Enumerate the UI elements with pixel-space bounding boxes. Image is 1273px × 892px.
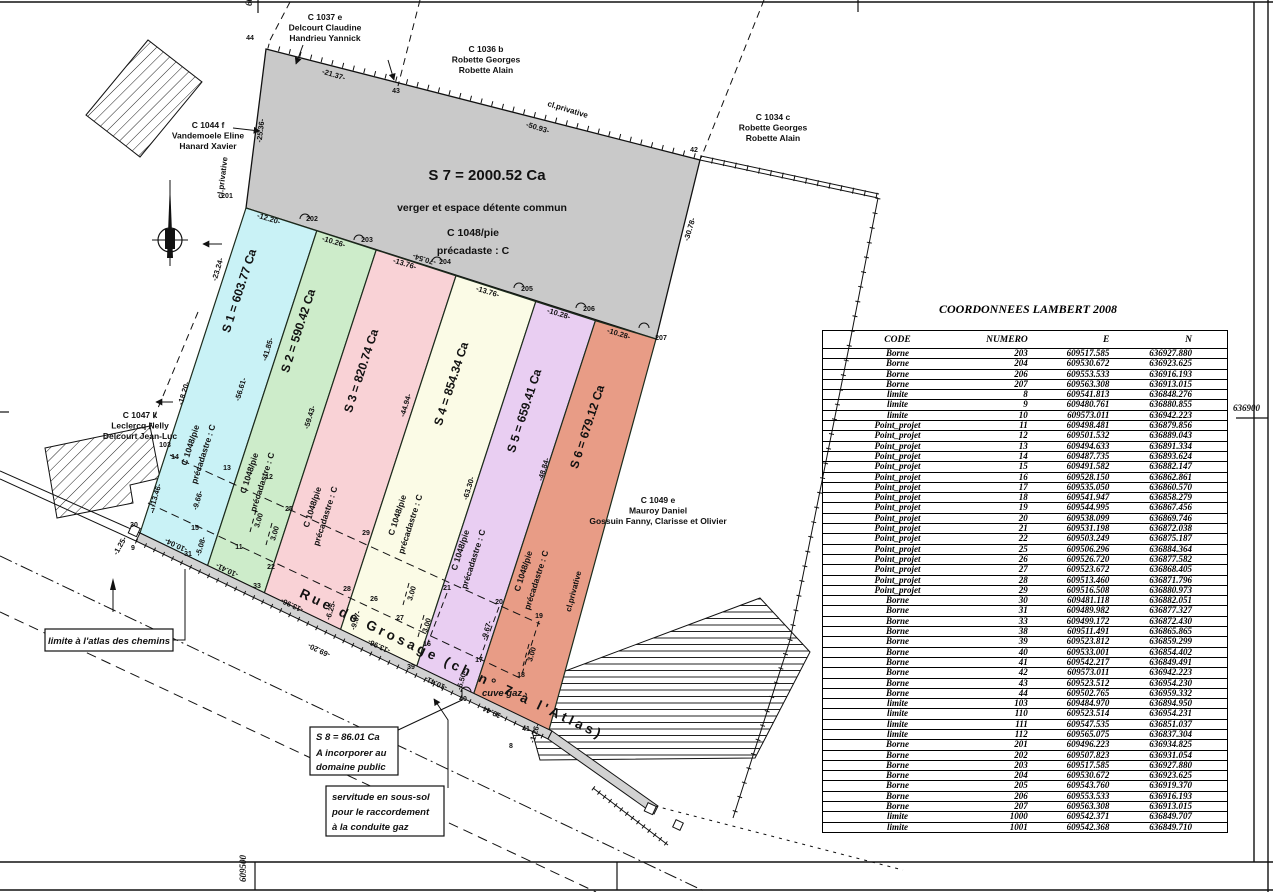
- point-number-label: 14: [171, 454, 179, 461]
- cell-n: 636849.710: [1109, 822, 1227, 832]
- point-number-label: 26: [370, 596, 378, 603]
- cell-numero: 11: [972, 421, 1028, 431]
- cell-n: 636919.370: [1109, 781, 1227, 791]
- cell-e: 609563.308: [1028, 379, 1110, 389]
- cell-numero: 13: [972, 441, 1028, 451]
- table-row: limite9609480.761636880.855: [823, 400, 1228, 410]
- cell-numero: 202: [972, 750, 1028, 760]
- dimension-label: -69.20-: [306, 641, 332, 659]
- cell-numero: 204: [972, 771, 1028, 781]
- point-number-label: 207: [655, 335, 667, 342]
- cell-code: Borne: [823, 647, 972, 657]
- dimension-label: -1.25-: [111, 535, 129, 557]
- cell-numero: 17: [972, 482, 1028, 492]
- point-number-label: 43: [392, 88, 400, 95]
- neighbor-label-c-1049-e: C 1049 e: [641, 495, 676, 505]
- neighbor-label-c-1047-k: Leclercq Nelly: [111, 421, 169, 431]
- cell-numero: 18: [972, 493, 1028, 503]
- cell-code: limite: [823, 812, 972, 822]
- cell-numero: 9: [972, 400, 1028, 410]
- point-number-label: 202: [306, 216, 318, 223]
- table-row: Borne38609511.491636865.865: [823, 627, 1228, 637]
- cell-code: Point_projet: [823, 472, 972, 482]
- cell-e: 609543.760: [1028, 781, 1110, 791]
- neighbor-label-c-1034-c: C 1034 c: [756, 112, 791, 122]
- cell-n: 636882.147: [1109, 462, 1227, 472]
- cell-n: 636879.856: [1109, 421, 1227, 431]
- table-row: Borne40609533.001636854.402: [823, 647, 1228, 657]
- grid-label-609500: 609500: [238, 855, 248, 883]
- cell-n: 636862.861: [1109, 472, 1227, 482]
- cell-e: 609516.508: [1028, 585, 1110, 595]
- table-row: Point_projet26609526.720636877.582: [823, 554, 1228, 564]
- cell-code: Point_projet: [823, 503, 972, 513]
- cell-code: Point_projet: [823, 493, 972, 503]
- neighbor-label-c-1049-e: Gossuin Fanny, Clarisse et Olivier: [589, 516, 727, 526]
- neighbor-label-c-1037-e: C 1037 e: [308, 12, 343, 22]
- point-number-label: 16: [423, 641, 431, 648]
- cell-n: 636916.193: [1109, 791, 1227, 801]
- table-row: Point_projet20609538.099636869.746: [823, 513, 1228, 523]
- note-servitude-line3: à la conduite gaz: [332, 822, 409, 833]
- header-code: CODE: [823, 331, 972, 349]
- table-row: Borne204609530.672636923.625: [823, 359, 1228, 369]
- point-number-label: 19: [535, 613, 543, 620]
- cell-n: 636875.187: [1109, 534, 1227, 544]
- cell-code: Point_projet: [823, 421, 972, 431]
- cell-code: limite: [823, 729, 972, 739]
- table-row: Point_projet18609541.947636858.279: [823, 493, 1228, 503]
- neighbor-label-c-1036-b: C 1036 b: [469, 44, 504, 54]
- cell-e: 609517.585: [1028, 349, 1110, 359]
- neighbor-label-c-1044-f: Hanard Xavier: [179, 141, 237, 151]
- table-row: Borne207609563.308636913.015: [823, 802, 1228, 812]
- cell-code: limite: [823, 719, 972, 729]
- cell-e: 609501.532: [1028, 431, 1110, 441]
- neighbor-label-c-1034-c: Robette Georges: [739, 123, 808, 133]
- cell-numero: 207: [972, 379, 1028, 389]
- cell-n: 636860.570: [1109, 482, 1227, 492]
- cell-n: 636923.625: [1109, 359, 1227, 369]
- header-e: E: [1028, 331, 1110, 349]
- cell-numero: 204: [972, 359, 1028, 369]
- neighbor-label-c-1036-b: Robette Georges: [452, 55, 521, 65]
- table-row: Point_projet11609498.481636879.856: [823, 421, 1228, 431]
- s7-area-label: S 7 = 2000.52 Ca: [428, 167, 546, 184]
- cell-code: Point_projet: [823, 554, 972, 564]
- table-row: Point_projet21609531.198636872.038: [823, 524, 1228, 534]
- table-row: Borne206609553.533636916.193: [823, 369, 1228, 379]
- cell-e: 609499.172: [1028, 616, 1110, 626]
- cell-numero: 43: [972, 678, 1028, 688]
- point-number-label: 8: [509, 743, 513, 750]
- cell-e: 609526.720: [1028, 554, 1110, 564]
- table-row: Point_projet14609487.735636893.624: [823, 451, 1228, 461]
- cell-n: 636872.430: [1109, 616, 1227, 626]
- table-row: limite112609565.075636837.304: [823, 729, 1228, 739]
- cell-e: 609503.249: [1028, 534, 1110, 544]
- cell-e: 609523.812: [1028, 637, 1110, 647]
- cell-e: 609530.672: [1028, 359, 1110, 369]
- table-row: Borne205609543.760636919.370: [823, 781, 1228, 791]
- note-limite-text: limite à l'atlas des chemins: [48, 636, 170, 647]
- cell-code: Borne: [823, 668, 972, 678]
- cell-e: 609535.050: [1028, 482, 1110, 492]
- point-number-label: 15: [191, 525, 199, 532]
- cell-code: Borne: [823, 750, 972, 760]
- cell-e: 609517.585: [1028, 760, 1110, 770]
- cell-code: Borne: [823, 781, 972, 791]
- point-number-label: 25: [285, 506, 293, 513]
- cell-code: Borne: [823, 791, 972, 801]
- table-row: Point_projet17609535.050636860.570: [823, 482, 1228, 492]
- cell-numero: 206: [972, 369, 1028, 379]
- cell-n: 636942.223: [1109, 668, 1227, 678]
- cl-privative-label: cl.privative: [546, 99, 589, 120]
- neighbor-label-c-1036-b: Robette Alain: [459, 65, 513, 75]
- table-row: Borne39609523.812636859.299: [823, 637, 1228, 647]
- point-number-label: 203: [361, 237, 373, 244]
- cell-n: 636869.746: [1109, 513, 1227, 523]
- cell-numero: 16: [972, 472, 1028, 482]
- table-row: Borne42609573.011636942.223: [823, 668, 1228, 678]
- table-row: Borne204609530.672636923.625: [823, 771, 1228, 781]
- cell-numero: 110: [972, 709, 1028, 719]
- point-number-label: 42: [690, 147, 698, 154]
- cell-e: 609553.533: [1028, 369, 1110, 379]
- table-row: limite1001609542.368636849.710: [823, 822, 1228, 832]
- table-row: Borne31609489.982636877.327: [823, 606, 1228, 616]
- cell-n: 636931.054: [1109, 750, 1227, 760]
- table-row: Point_projet27609523.672636868.405: [823, 565, 1228, 575]
- cell-n: 636880.855: [1109, 400, 1227, 410]
- cell-e: 609553.533: [1028, 791, 1110, 801]
- note-servitude-box: servitude en sous-sol pour le raccordeme…: [326, 786, 444, 836]
- cell-code: Borne: [823, 369, 972, 379]
- neighbor-label-c-1044-f: C 1044 f: [192, 120, 225, 130]
- table-row: Borne206609553.533636916.193: [823, 791, 1228, 801]
- cell-code: limite: [823, 822, 972, 832]
- cell-numero: 28: [972, 575, 1028, 585]
- cell-code: Point_projet: [823, 585, 972, 595]
- cell-n: 636959.332: [1109, 688, 1227, 698]
- header-n: N: [1109, 331, 1227, 349]
- table-row: Point_projet29609516.508636880.973: [823, 585, 1228, 595]
- cell-numero: 20: [972, 513, 1028, 523]
- cell-numero: 112: [972, 729, 1028, 739]
- header-numero: NUMERO: [972, 331, 1028, 349]
- point-number-label: 7: [151, 508, 155, 515]
- cell-e: 609481.118: [1028, 596, 1110, 606]
- table-row: Borne203609517.585636927.880: [823, 349, 1228, 359]
- neighbor-label-c-1037-e: Handrieu Yannick: [289, 33, 360, 43]
- cell-code: Point_projet: [823, 575, 972, 585]
- cell-numero: 44: [972, 688, 1028, 698]
- point-number-label: 39: [407, 664, 415, 671]
- cell-e: 609487.735: [1028, 451, 1110, 461]
- cell-e: 609542.217: [1028, 657, 1110, 667]
- cell-n: 636882.051: [1109, 596, 1227, 606]
- cell-n: 636889.043: [1109, 431, 1227, 441]
- cell-e: 609494.633: [1028, 441, 1110, 451]
- cell-numero: 38: [972, 627, 1028, 637]
- cell-code: Borne: [823, 637, 972, 647]
- neighbor-label-c-1047-k: Delcourt Jean-Luc: [103, 431, 177, 441]
- cell-e: 609533.001: [1028, 647, 1110, 657]
- cell-code: Borne: [823, 349, 972, 359]
- cell-code: Point_projet: [823, 565, 972, 575]
- table-row: Point_projet22609503.249636875.187: [823, 534, 1228, 544]
- cell-code: Borne: [823, 760, 972, 770]
- coordinates-panel: COORDONNEES LAMBERT 2008 CODE NUMERO E N…: [822, 302, 1234, 833]
- cell-numero: 27: [972, 565, 1028, 575]
- neighbor-label-c-1037-e: Delcourt Claudine: [289, 23, 362, 33]
- point-number-label: 30: [130, 522, 138, 529]
- grid-label-top-clipped: 609500: [244, 0, 254, 6]
- cell-code: Borne: [823, 678, 972, 688]
- cell-e: 609523.672: [1028, 565, 1110, 575]
- point-number-label: 22: [267, 564, 275, 571]
- cell-code: Borne: [823, 606, 972, 616]
- point-number-label: 27: [396, 615, 404, 622]
- table-row: Borne207609563.308636913.015: [823, 379, 1228, 389]
- neighbor-label-c-1047-k: C 1047 k: [123, 410, 158, 420]
- cell-e: 609530.672: [1028, 771, 1110, 781]
- cell-numero: 31: [972, 606, 1028, 616]
- cell-e: 609563.308: [1028, 802, 1110, 812]
- cell-n: 636877.327: [1109, 606, 1227, 616]
- cell-e: 609496.223: [1028, 740, 1110, 750]
- table-row: limite8609541.813636848.276: [823, 390, 1228, 400]
- cell-n: 636871.796: [1109, 575, 1227, 585]
- cell-e: 609541.947: [1028, 493, 1110, 503]
- cell-e: 609491.582: [1028, 462, 1110, 472]
- cell-numero: 39: [972, 637, 1028, 647]
- cell-e: 609502.765: [1028, 688, 1110, 698]
- coordinates-title: COORDONNEES LAMBERT 2008: [822, 302, 1234, 317]
- cell-n: 636927.880: [1109, 760, 1227, 770]
- point-number-label: 44: [246, 35, 254, 42]
- cell-code: Point_projet: [823, 441, 972, 451]
- cell-code: Borne: [823, 740, 972, 750]
- cell-e: 609573.011: [1028, 410, 1110, 420]
- neighbor-label-c-1044-f: Vandemoele Eline: [172, 131, 245, 141]
- point-number-label: 20: [495, 599, 503, 606]
- cell-n: 636893.624: [1109, 451, 1227, 461]
- cell-code: Point_projet: [823, 524, 972, 534]
- cell-numero: 206: [972, 791, 1028, 801]
- point-number-label: 18: [517, 672, 525, 679]
- cell-e: 609544.995: [1028, 503, 1110, 513]
- table-row: Borne33609499.172636872.430: [823, 616, 1228, 626]
- point-number-label: 21: [443, 585, 451, 592]
- cell-n: 636849.491: [1109, 657, 1227, 667]
- cell-n: 636916.193: [1109, 369, 1227, 379]
- cell-numero: 40: [972, 647, 1028, 657]
- cell-e: 609542.368: [1028, 822, 1110, 832]
- table-row: limite1000609542.371636849.707: [823, 812, 1228, 822]
- s7-usage-label: verger et espace détente commun: [397, 202, 567, 214]
- cell-n: 636848.276: [1109, 390, 1227, 400]
- cell-e: 609480.761: [1028, 400, 1110, 410]
- cell-e: 609489.982: [1028, 606, 1110, 616]
- benchmark-icon: [110, 578, 116, 612]
- table-row: Borne43609523.512636954.230: [823, 678, 1228, 688]
- cell-numero: 103: [972, 699, 1028, 709]
- cell-n: 636913.015: [1109, 379, 1227, 389]
- cell-numero: 12: [972, 431, 1028, 441]
- cell-n: 636894.950: [1109, 699, 1227, 709]
- cell-n: 636868.405: [1109, 565, 1227, 575]
- table-row: limite103609484.970636894.950: [823, 699, 1228, 709]
- cell-numero: 33: [972, 616, 1028, 626]
- neighbor-label-c-1034-c: Robette Alain: [746, 133, 800, 143]
- cell-numero: 1000: [972, 812, 1028, 822]
- cell-e: 609528.150: [1028, 472, 1110, 482]
- cell-e: 609531.198: [1028, 524, 1110, 534]
- cell-numero: 203: [972, 349, 1028, 359]
- point-number-label: 103: [159, 442, 171, 449]
- cell-numero: 205: [972, 781, 1028, 791]
- point-number-label: 11: [235, 544, 243, 551]
- cell-code: limite: [823, 709, 972, 719]
- cell-numero: 207: [972, 802, 1028, 812]
- cell-numero: 21: [972, 524, 1028, 534]
- cell-n: 636865.865: [1109, 627, 1227, 637]
- cell-numero: 111: [972, 719, 1028, 729]
- note-servitude-line1: servitude en sous-sol: [332, 792, 430, 803]
- cell-code: Point_projet: [823, 451, 972, 461]
- cell-e: 609523.512: [1028, 678, 1110, 688]
- point-number-label: 41: [522, 726, 530, 733]
- cell-numero: 22: [972, 534, 1028, 544]
- cell-numero: 10: [972, 410, 1028, 420]
- point-number-label: 12: [265, 474, 273, 481]
- table-header-row: CODE NUMERO E N: [823, 331, 1228, 349]
- cell-e: 609541.813: [1028, 390, 1110, 400]
- point-number-label: 13: [223, 465, 231, 472]
- cell-e: 609507.823: [1028, 750, 1110, 760]
- cell-code: Borne: [823, 802, 972, 812]
- point-number-label: 204: [439, 259, 451, 266]
- cell-n: 636954.230: [1109, 678, 1227, 688]
- cell-code: limite: [823, 410, 972, 420]
- point-number-label: 17: [475, 657, 483, 664]
- point-number-label: 40: [459, 696, 467, 703]
- point-number-label: 29: [362, 530, 370, 537]
- point-number-label: 31: [184, 551, 192, 558]
- cell-code: Point_projet: [823, 462, 972, 472]
- cell-code: limite: [823, 699, 972, 709]
- point-number-label: 28: [343, 586, 351, 593]
- point-number-label: 33: [253, 583, 261, 590]
- note-servitude-line2: pour le raccordement: [331, 807, 430, 818]
- cell-code: Borne: [823, 616, 972, 626]
- note-s8-line1: S 8 = 86.01 Ca: [316, 732, 380, 743]
- cell-n: 636877.582: [1109, 554, 1227, 564]
- survey-marker-square: [673, 820, 684, 831]
- cell-n: 636923.625: [1109, 771, 1227, 781]
- cell-numero: 30: [972, 596, 1028, 606]
- cell-n: 636954.231: [1109, 709, 1227, 719]
- cell-n: 636851.037: [1109, 719, 1227, 729]
- table-row: Borne44609502.765636959.332: [823, 688, 1228, 698]
- cell-e: 609573.011: [1028, 668, 1110, 678]
- point-number-label: 9: [131, 545, 135, 552]
- cell-n: 636913.015: [1109, 802, 1227, 812]
- table-row: Point_projet13609494.633636891.334: [823, 441, 1228, 451]
- coordinates-table: CODE NUMERO E N Borne203609517.585636927…: [822, 330, 1228, 833]
- cell-code: Borne: [823, 359, 972, 369]
- cell-code: Borne: [823, 596, 972, 606]
- s7-cadastre-label: C 1048/pie: [447, 227, 499, 239]
- cell-e: 609547.535: [1028, 719, 1110, 729]
- grid-label-636900: 636900: [1233, 403, 1261, 413]
- table-row: Borne202609507.823636931.054: [823, 750, 1228, 760]
- cell-numero: 15: [972, 462, 1028, 472]
- cell-code: limite: [823, 400, 972, 410]
- cell-code: Borne: [823, 657, 972, 667]
- table-row: Borne201609496.223636934.825: [823, 740, 1228, 750]
- table-row: Point_projet25609506.296636884.364: [823, 544, 1228, 554]
- cell-n: 636872.038: [1109, 524, 1227, 534]
- cell-n: 636867.456: [1109, 503, 1227, 513]
- cell-n: 636854.402: [1109, 647, 1227, 657]
- cell-n: 636927.880: [1109, 349, 1227, 359]
- table-row: Borne30609481.118636882.051: [823, 596, 1228, 606]
- cell-n: 636942.223: [1109, 410, 1227, 420]
- cell-code: Borne: [823, 771, 972, 781]
- cell-numero: 19: [972, 503, 1028, 513]
- cell-numero: 201: [972, 740, 1028, 750]
- cell-e: 609511.491: [1028, 627, 1110, 637]
- cell-numero: 25: [972, 544, 1028, 554]
- cell-code: Borne: [823, 688, 972, 698]
- point-number-label: 206: [583, 306, 595, 313]
- cell-n: 636858.279: [1109, 493, 1227, 503]
- table-row: Borne41609542.217636849.491: [823, 657, 1228, 667]
- cell-n: 636891.334: [1109, 441, 1227, 451]
- cell-numero: 203: [972, 760, 1028, 770]
- table-row: Point_projet15609491.582636882.147: [823, 462, 1228, 472]
- cell-numero: 26: [972, 554, 1028, 564]
- cell-n: 636849.707: [1109, 812, 1227, 822]
- table-row: limite111609547.535636851.037: [823, 719, 1228, 729]
- table-row: Borne203609517.585636927.880: [823, 760, 1228, 770]
- cell-code: Borne: [823, 379, 972, 389]
- table-row: limite10609573.011636942.223: [823, 410, 1228, 420]
- cell-e: 609513.460: [1028, 575, 1110, 585]
- note-limite-box: limite à l'atlas des chemins: [45, 629, 173, 651]
- cell-code: Point_projet: [823, 431, 972, 441]
- cell-n: 636880.973: [1109, 585, 1227, 595]
- cell-e: 609542.371: [1028, 812, 1110, 822]
- cell-numero: 41: [972, 657, 1028, 667]
- cell-e: 609565.075: [1028, 729, 1110, 739]
- cell-e: 609538.099: [1028, 513, 1110, 523]
- cell-n: 636859.299: [1109, 637, 1227, 647]
- cell-code: Point_projet: [823, 482, 972, 492]
- note-s8-line3: domaine public: [316, 762, 386, 773]
- cell-code: Point_projet: [823, 544, 972, 554]
- cell-numero: 42: [972, 668, 1028, 678]
- table-row: limite110609523.514636954.231: [823, 709, 1228, 719]
- cell-code: Point_projet: [823, 534, 972, 544]
- table-row: Point_projet28609513.460636871.796: [823, 575, 1228, 585]
- s7-precadastre-label: précadaste : C: [437, 245, 510, 257]
- cell-numero: 8: [972, 390, 1028, 400]
- cell-n: 636934.825: [1109, 740, 1227, 750]
